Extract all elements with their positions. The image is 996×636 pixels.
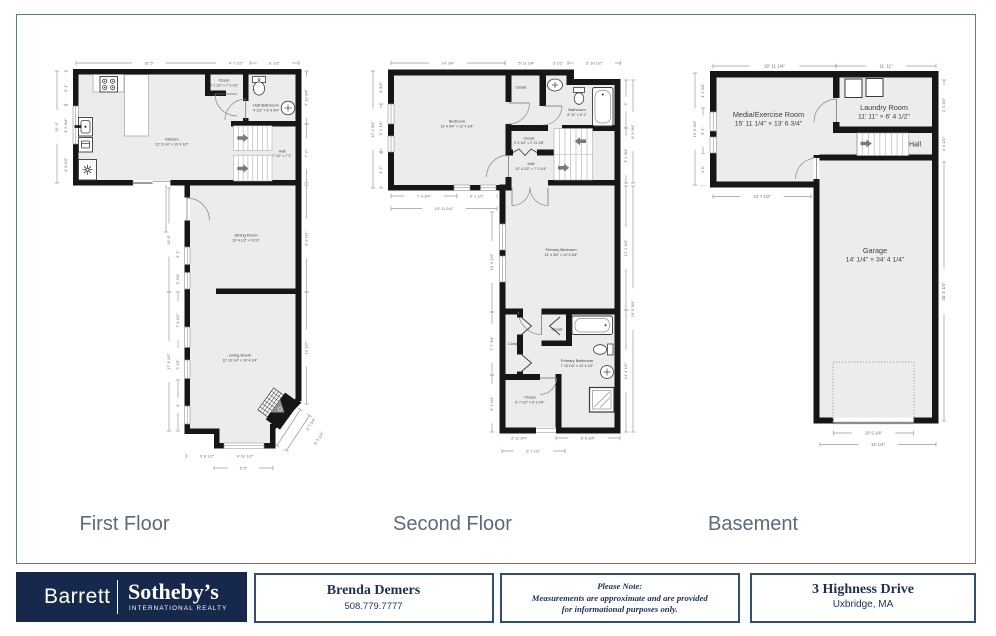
- svg-text:11' 11" × 6' 4 1/2": 11' 11" × 6' 4 1/2": [858, 114, 911, 121]
- svg-text:4' 2": 4' 2": [378, 166, 383, 174]
- svg-text:Closet: Closet: [515, 85, 527, 90]
- svg-text:5' 1 1/2": 5' 1 1/2": [378, 120, 383, 135]
- svg-text:Closet: Closet: [524, 395, 536, 400]
- svg-text:Primary Bathroom: Primary Bathroom: [561, 358, 594, 363]
- svg-text:4' 1/2" × 6' 9 3/4": 4' 1/2" × 6' 9 3/4": [253, 108, 280, 112]
- svg-text:4' 5": 4' 5": [700, 165, 705, 173]
- svg-text:13' 4 1/2" × 13' 6": 13' 4 1/2" × 13' 6": [232, 239, 260, 243]
- svg-text:13' 1/2": 13' 1/2": [304, 341, 309, 355]
- svg-text:9' 4 1/4" × 2' 11 1/8": 9' 4 1/4" × 2' 11 1/8": [514, 141, 545, 145]
- svg-text:6' 6 3/4": 6' 6 3/4": [581, 435, 596, 440]
- svg-text:4' 6 3/4": 4' 6 3/4": [63, 118, 68, 133]
- svg-text:Living Room: Living Room: [229, 353, 252, 358]
- svg-text:2' 5 3/4": 2' 5 3/4": [941, 97, 946, 112]
- svg-text:5' 10": 5' 10": [175, 359, 180, 370]
- svg-text:15' 6 1/4": 15' 6 1/4": [489, 253, 494, 270]
- svg-text:4' 10 1/2": 4' 10 1/2": [237, 453, 254, 458]
- svg-text:4' 2 3/4": 4' 2 3/4": [700, 83, 705, 98]
- svg-text:13' 4 3/4" × 12' 4 1/4": 13' 4 3/4" × 12' 4 1/4": [440, 125, 474, 129]
- svg-text:Primary Bedroom: Primary Bedroom: [545, 247, 577, 252]
- svg-text:5' 10 1/2": 5' 10 1/2": [586, 60, 603, 65]
- svg-text:Media/Exercise Room: Media/Exercise Room: [733, 110, 804, 119]
- svg-text:Closet: Closet: [508, 341, 520, 346]
- svg-text:7' 10" × 7' 2": 7' 10" × 7' 2": [272, 154, 292, 158]
- svg-text:Closet: Closet: [219, 79, 231, 83]
- svg-text:14' 3/4": 14' 3/4": [441, 60, 455, 65]
- svg-text:Hall: Hall: [528, 161, 535, 166]
- svg-text:4' 8 1/2": 4' 8 1/2": [63, 157, 68, 172]
- svg-text:3' 1/2": 3' 1/2": [552, 60, 564, 65]
- svg-text:9' 8 1/2": 9' 8 1/2": [304, 231, 309, 246]
- svg-text:13' 11 3/4": 13' 11 3/4": [435, 206, 454, 211]
- svg-text:16' 5": 16' 5": [144, 60, 155, 65]
- svg-text:13' 6 3/4": 13' 6 3/4": [692, 120, 697, 137]
- svg-text:14' 1/4": 14' 1/4": [871, 442, 885, 447]
- svg-text:6' 1/2": 6' 1/2": [269, 60, 281, 65]
- svg-text:4' 3/4": 4' 3/4": [378, 81, 383, 93]
- svg-text:12' 4 1/2" × 7' 3 1/4": 12' 4 1/2" × 7' 3 1/4": [515, 167, 547, 171]
- svg-text:Garage: Garage: [863, 246, 887, 255]
- svg-text:12' 2 3/4": 12' 2 3/4": [623, 239, 628, 256]
- svg-text:Bedroom: Bedroom: [449, 119, 466, 124]
- svg-text:6' 3 1/4": 6' 3 1/4": [489, 396, 494, 411]
- svg-text:12' 4 3/4": 12' 4 3/4": [370, 121, 375, 138]
- svg-text:7' 7 3/4": 7' 7 3/4": [489, 336, 494, 351]
- svg-text:7' 10 1/4" × 14' 4 1/2": 7' 10 1/4" × 14' 4 1/2": [560, 364, 594, 368]
- svg-text:3' 7 3/4": 3' 7 3/4": [305, 416, 317, 431]
- svg-text:6' 7 1/2" × 6' 3 1/4": 6' 7 1/2" × 6' 3 1/4": [515, 400, 545, 404]
- svg-text:Bathroom: Bathroom: [568, 107, 586, 112]
- svg-text:Hall: Hall: [909, 142, 922, 149]
- svg-text:7' 4 3/4": 7' 4 3/4": [417, 193, 432, 198]
- svg-text:4' 1 1/2" × 7' 3 1/2": 4' 1 1/2" × 7' 3 1/2": [210, 83, 239, 87]
- svg-text:Dining Room: Dining Room: [234, 233, 258, 238]
- svg-text:5' 3/4": 5' 3/4": [175, 273, 180, 285]
- svg-text:Closet: Closet: [551, 327, 563, 332]
- svg-text:13' 7 1/2": 13' 7 1/2": [753, 194, 771, 199]
- svg-text:6' 1": 6' 1": [63, 84, 68, 92]
- svg-text:14' 1/4" × 34' 4 1/4": 14' 1/4" × 34' 4 1/4": [846, 257, 905, 264]
- svg-text:Half Bathroom: Half Bathroom: [253, 103, 279, 108]
- svg-text:34' 4 1/4": 34' 4 1/4": [941, 282, 946, 301]
- svg-text:13' 4 3/4" × 14' 3 3/4": 13' 4 3/4" × 14' 3 3/4": [544, 253, 578, 257]
- svg-text:8' 9 3/4": 8' 9 3/4": [630, 124, 635, 139]
- svg-text:12' 10 1/4" × 19' 4 1/4": 12' 10 1/4" × 19' 4 1/4": [222, 359, 258, 363]
- svg-text:3' 1": 3' 1": [175, 250, 180, 258]
- svg-text:Hall: Hall: [279, 149, 286, 154]
- svg-text:6' 7 1/2": 6' 7 1/2": [526, 448, 541, 453]
- svg-text:15' 4": 15' 4": [54, 121, 59, 132]
- svg-text:3' 11 3/4": 3' 11 3/4": [511, 435, 528, 440]
- svg-text:Laundry Room: Laundry Room: [860, 103, 908, 112]
- svg-text:21' 5 1/4" × 13' 4 1/2": 21' 5 1/4" × 13' 4 1/2": [155, 143, 189, 147]
- svg-text:4' 7 1/2": 4' 7 1/2": [229, 60, 244, 65]
- svg-text:Closet: Closet: [523, 136, 535, 141]
- svg-text:13' 8": 13' 8": [166, 234, 171, 245]
- svg-text:Kitchen: Kitchen: [165, 137, 178, 142]
- svg-text:5' 10 3/4": 5' 10 3/4": [304, 89, 309, 106]
- svg-text:11' 11": 11' 11": [879, 64, 893, 69]
- svg-text:17' 6 1/2": 17' 6 1/2": [166, 353, 171, 370]
- svg-text:10' 5 1/4": 10' 5 1/4": [865, 431, 883, 436]
- svg-text:18' 11 1/4": 18' 11 1/4": [764, 64, 786, 69]
- svg-text:15' 11 1/4" × 13' 6 3/4": 15' 11 1/4" × 13' 6 3/4": [735, 121, 803, 128]
- svg-text:5' 1 1/2": 5' 1 1/2": [470, 193, 485, 198]
- svg-text:6': 6': [623, 102, 628, 105]
- svg-text:14' 4 1/2": 14' 4 1/2": [623, 362, 628, 379]
- svg-text:6' 5": 6' 5": [240, 465, 248, 470]
- svg-text:8' 11" × 6' 1": 8' 11" × 6' 1": [567, 113, 587, 117]
- svg-text:5' 11 1/4": 5' 11 1/4": [518, 60, 535, 65]
- svg-text:4': 4': [175, 404, 180, 407]
- svg-text:7' 8 1/2": 7' 8 1/2": [175, 313, 180, 328]
- svg-text:24' 5 3/4": 24' 5 3/4": [630, 300, 635, 317]
- svg-text:3' 8 1/2": 3' 8 1/2": [200, 453, 215, 458]
- svg-text:7' 2": 7' 2": [304, 149, 309, 157]
- svg-text:5' 1": 5' 1": [700, 127, 705, 135]
- svg-text:4' 3 1/2": 4' 3 1/2": [941, 136, 946, 151]
- svg-text:3' 1 3/4": 3' 1 3/4": [623, 148, 628, 163]
- svg-text:5' 3 1/4": 5' 3 1/4": [313, 430, 325, 445]
